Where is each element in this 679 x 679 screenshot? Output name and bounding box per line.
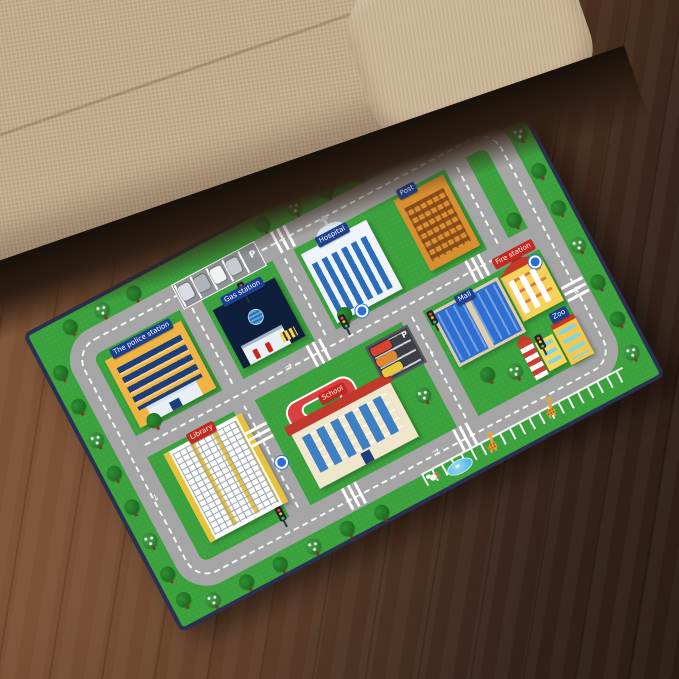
room-scene: P The police station Gas station Hospita… — [0, 0, 679, 679]
tree-icon — [140, 530, 160, 550]
tree-icon — [157, 564, 177, 584]
tree-icon — [588, 272, 608, 292]
tree-icon — [372, 502, 392, 522]
tree-icon — [203, 589, 223, 609]
tree-icon — [122, 497, 142, 517]
tree-icon — [622, 342, 642, 362]
tree-icon — [337, 518, 357, 538]
tree-icon — [270, 554, 290, 574]
tree-icon — [173, 589, 193, 609]
tree-icon — [607, 309, 627, 329]
tree-icon — [236, 572, 256, 592]
tree-icon — [104, 463, 124, 483]
tree-icon — [86, 430, 106, 450]
tree-icon — [304, 536, 324, 556]
